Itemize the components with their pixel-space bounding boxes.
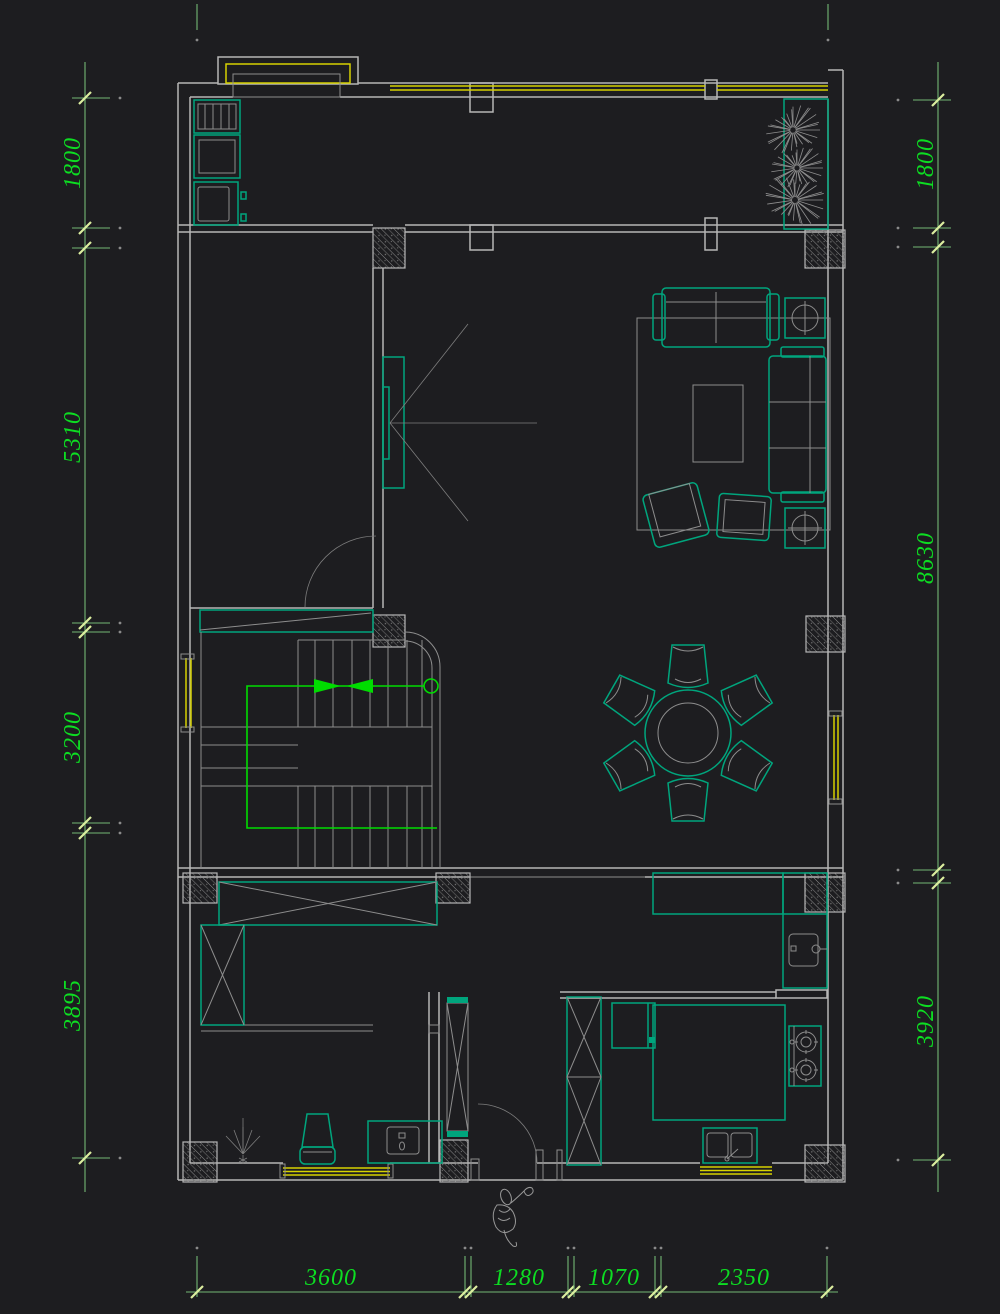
dim-label: 3920 [913,995,939,1048]
living-room[interactable] [637,288,830,548]
vanity-sink [368,1121,442,1163]
dim-label: 3895 [60,979,86,1032]
dimension-bottom[interactable]: 3600 1280 1070 2350 [186,1247,838,1298]
dining-chair [717,738,774,794]
plant [771,148,823,187]
sofa-three-seat [769,347,826,502]
bathroom[interactable] [226,1114,442,1164]
kitchen-cabinets-top[interactable] [194,100,246,225]
arrow-left [346,679,373,693]
dimension-left[interactable]: 1800 5310 3200 3895 [60,62,121,1192]
person-sketch [493,1187,533,1246]
stair-cabinet [200,610,373,632]
dim-label: 3600 [304,1265,357,1291]
dining-chair [602,738,659,794]
plant [766,178,824,226]
door-swing-arc [478,1104,537,1163]
plant [766,106,820,154]
gas-stove [789,1026,821,1086]
tv-projection-lines [390,324,537,521]
bay-window[interactable] [218,57,358,97]
cad-viewport[interactable]: 1800 5310 3200 3895 1800 8630 3920 3600 … [0,0,1000,1314]
dim-label: 1280 [493,1265,545,1291]
floor-plan[interactable]: 1800 5310 3200 3895 1800 8630 3920 3600 … [0,0,1000,1314]
dining-chair [602,672,659,728]
staircase[interactable] [200,610,440,868]
dimension-right[interactable]: 1800 8630 3920 [897,62,951,1192]
coffee-table [693,385,743,462]
nightstand-cabinet [612,1003,655,1048]
dim-label: 2350 [718,1265,770,1291]
duct-panel [447,997,468,1137]
window-bedroom [700,1167,772,1174]
storage-cabinets[interactable] [201,882,601,1165]
stair-direction-path [247,679,438,828]
walls[interactable] [178,57,843,1180]
window-left [181,654,194,732]
cabinet-x-wide [219,882,437,925]
dining-table[interactable] [602,645,774,821]
ottoman [717,493,772,541]
side-table-top [785,298,825,338]
door-swing-arc [305,536,376,607]
dimension-top-stubs [196,4,830,41]
structural-columns[interactable] [183,228,845,1182]
shower [226,1118,260,1164]
rug [637,318,830,530]
arrow-right [314,679,341,693]
dim-label: 8630 [913,532,939,584]
armchair [642,482,710,549]
kitchen[interactable] [478,873,827,1163]
dim-label: 1070 [588,1265,640,1291]
sink-single [789,934,827,966]
window-right [829,711,842,804]
dining-chair [717,672,774,728]
cabinet-x-tall-left [201,925,244,1025]
dining-chair [668,645,708,688]
toilet [300,1114,335,1164]
dim-label: 1800 [60,137,86,189]
stair-treads-lower [298,786,422,868]
counter-top [653,873,783,914]
dim-label: 3200 [60,711,86,764]
double-sink [703,1128,757,1163]
bed-island [653,1005,785,1120]
dim-label: 5310 [60,411,86,463]
dim-label: 1800 [913,138,939,190]
tv [383,357,404,488]
wardrobe-x [567,997,601,1165]
hallway[interactable] [305,324,537,607]
planter[interactable] [766,99,828,229]
side-table-bottom [785,508,825,548]
dining-chair [668,779,708,822]
window-bath [280,1164,393,1178]
